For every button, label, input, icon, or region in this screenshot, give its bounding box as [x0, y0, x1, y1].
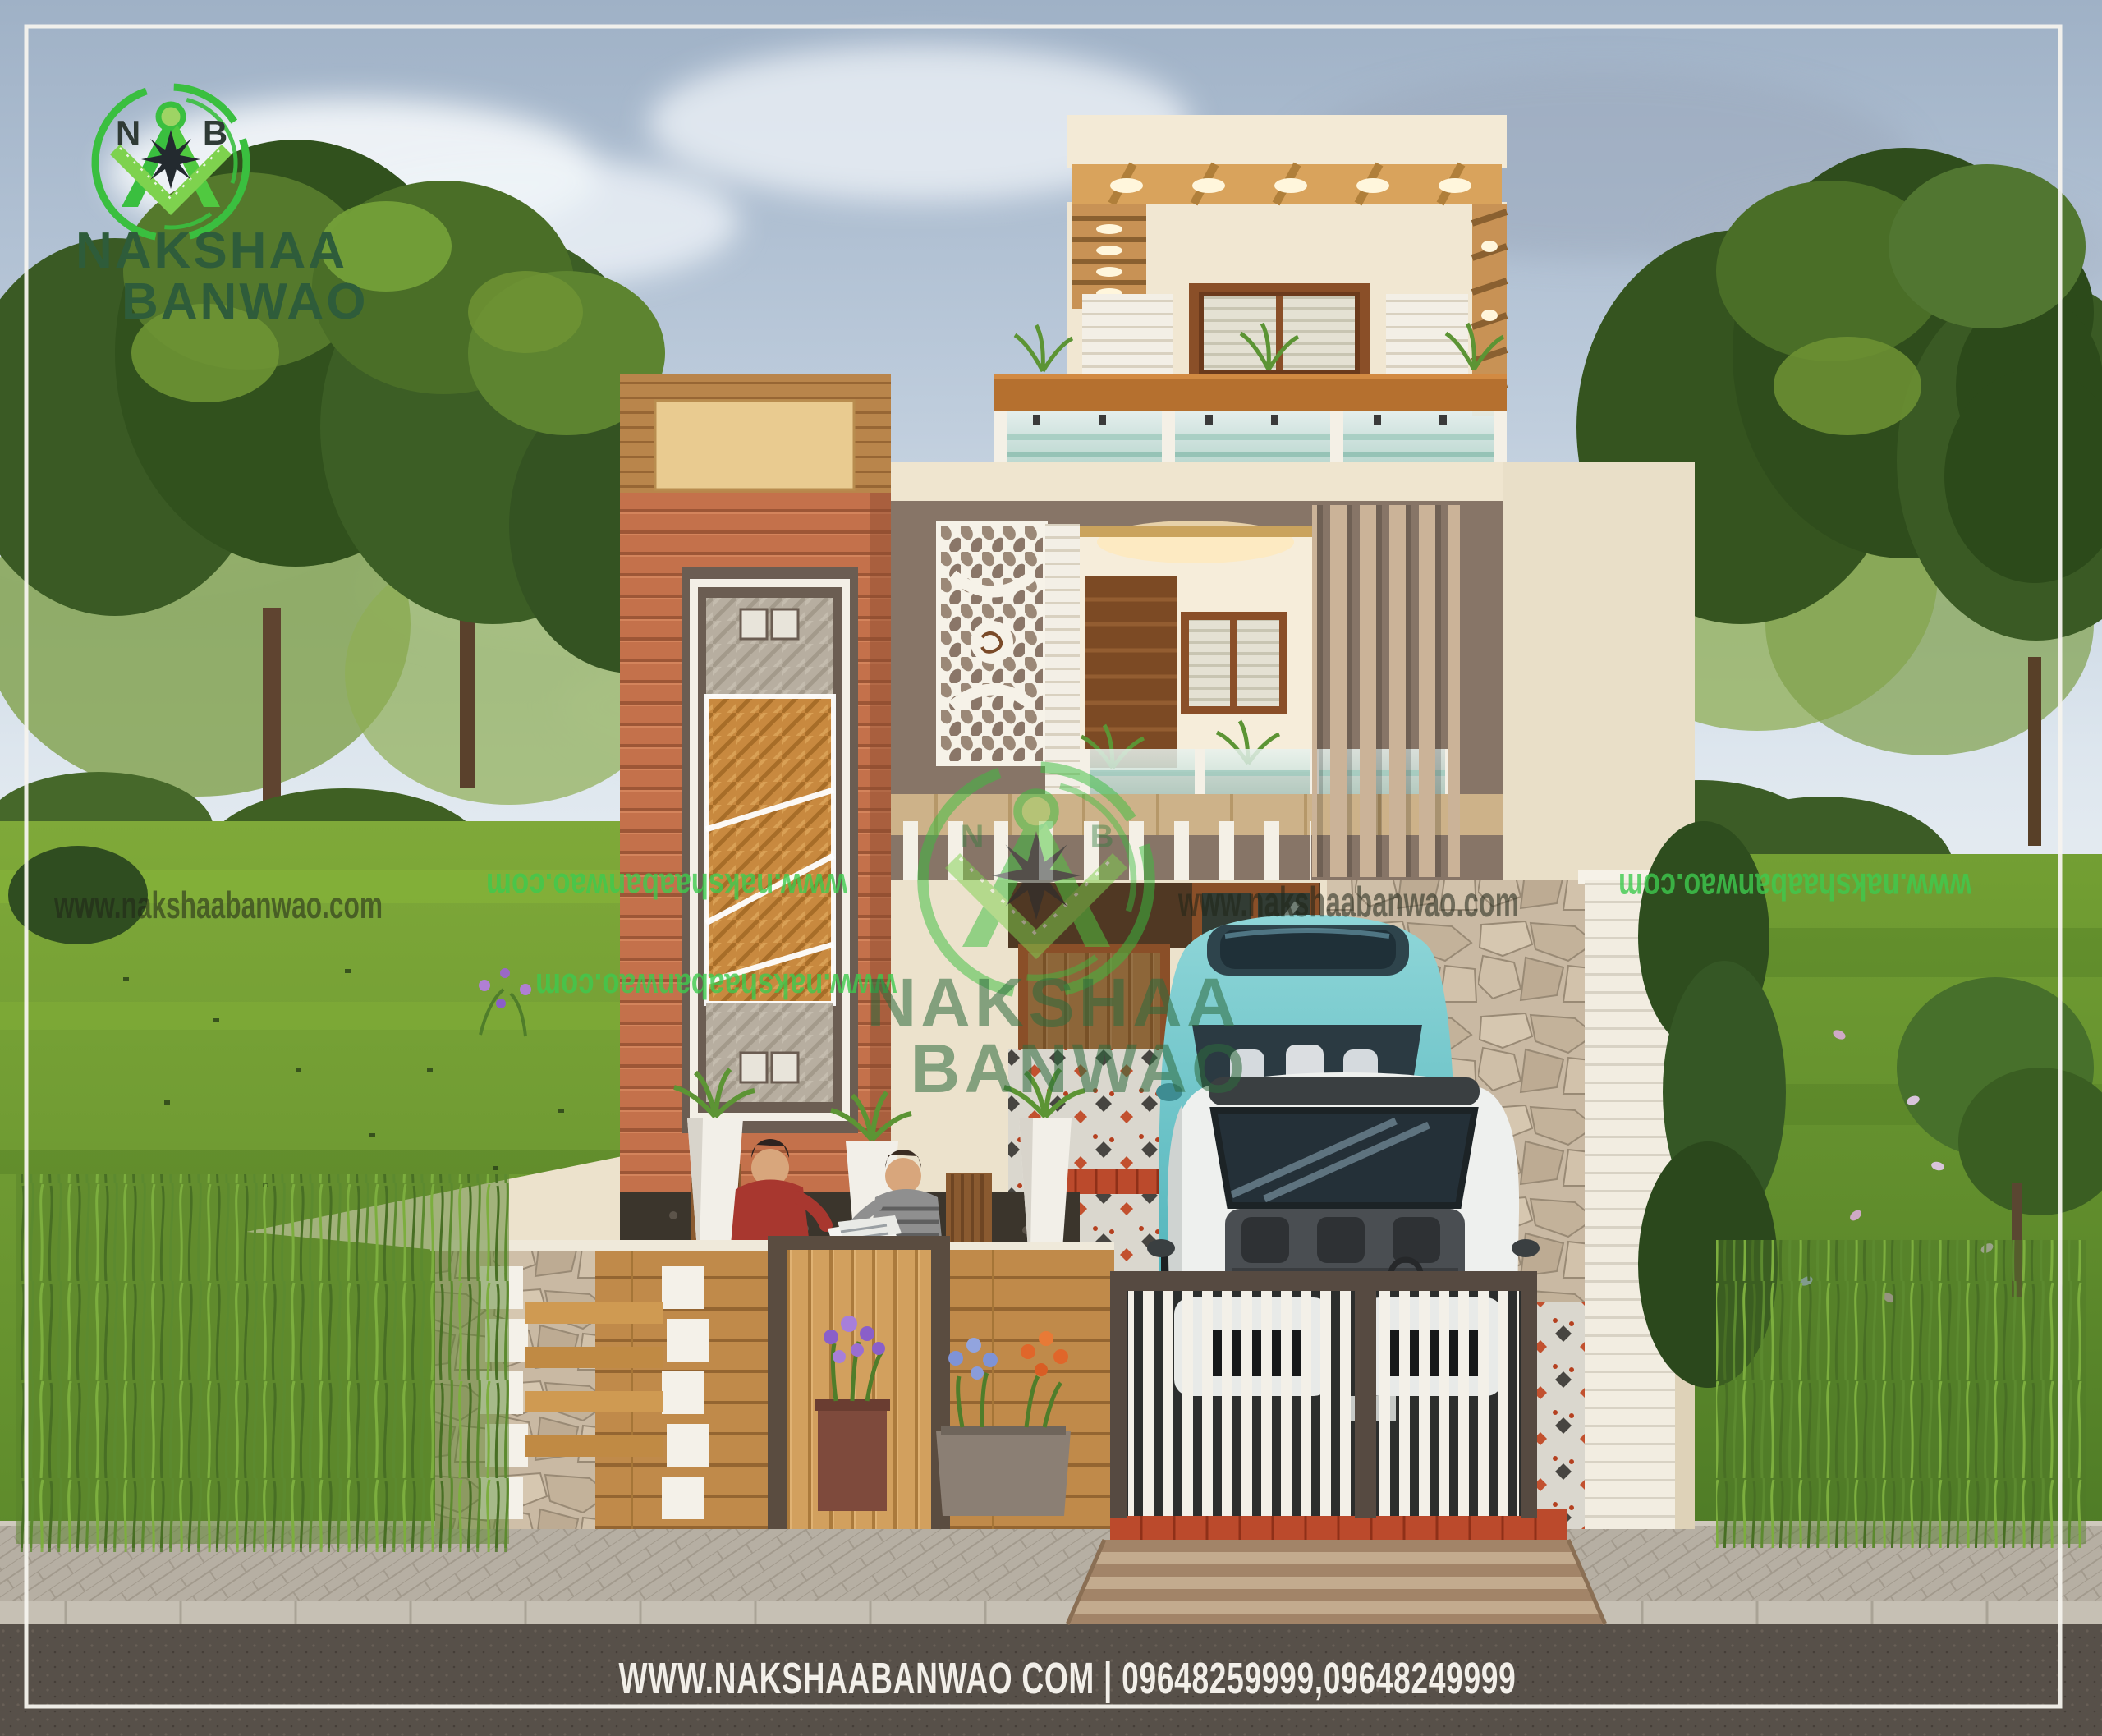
logo-monogram-b: B [203, 113, 227, 152]
convertible-mirror-left [1147, 1239, 1175, 1257]
watermark-mirrored-tower: www.nakshaabanwao.com [535, 966, 897, 1006]
logo-monogram-n: N [116, 113, 140, 152]
render-canvas: www.nakshaabanwao.com www.nakshaabanwao.… [0, 0, 2102, 1736]
tower-maple-panel [655, 401, 854, 489]
watermark-center-house: www.nakshaabanwao.com [1177, 879, 1519, 926]
third-floor-window [1189, 283, 1370, 382]
tall-grass-left [16, 1174, 509, 1552]
driveway-ramp [1067, 1540, 1605, 1624]
watermark-left-lawn: www.nakshaabanwao.com [53, 884, 383, 926]
convertible-windshield [1214, 1110, 1475, 1206]
footer-contact-line: WWW.NAKSHAABANWAO COM | 09648259999,0964… [619, 1654, 1517, 1704]
watermark-mirrored-right: www.nakshaabanwao.com [1618, 866, 1972, 908]
tall-grass-right [1716, 1240, 2086, 1548]
convertible-deck-band [1209, 1077, 1480, 1105]
gate-leaf-right-slats [1376, 1291, 1519, 1516]
watermark-monogram-n: N [961, 819, 984, 855]
watermark-mirrored-left: www.nakshaabanwao.com [486, 866, 848, 906]
curb [0, 1601, 2102, 1624]
right-return-wall [1503, 462, 1695, 880]
brand-name-line2: BANWAO [122, 273, 368, 330]
left-white-slat-panel [1082, 294, 1173, 379]
second-floor-balcony [1080, 521, 1312, 772]
second-floor-window [1181, 612, 1287, 714]
jali-panel [939, 524, 1045, 764]
left-light-slat-stack [1072, 204, 1146, 309]
wall-cap-right [950, 1242, 1114, 1250]
gate-leaf-left-slats [1128, 1291, 1353, 1516]
parapet [1067, 115, 1507, 168]
wooden-chair-right [946, 1173, 992, 1247]
main-gate [1110, 1271, 1567, 1542]
right-white-slat-panel [1386, 294, 1468, 379]
watermark-name-line2: BANWAO [911, 1030, 1250, 1107]
second-floor [891, 462, 1695, 880]
gate-post-left [1110, 1271, 1127, 1518]
gate-top-rail [1110, 1271, 1537, 1291]
vertical-fins [1312, 505, 1460, 877]
third-floor-glass-railing [994, 411, 1507, 462]
left-tower [620, 374, 891, 1236]
third-floor [994, 115, 1507, 462]
tower-decor-panel [682, 567, 858, 1133]
beam-highlight [994, 374, 1507, 379]
gate-post-center [1355, 1281, 1376, 1518]
gate-post-right [1521, 1271, 1537, 1518]
watermark-monogram-b: B [1090, 819, 1114, 855]
architectural-render: www.nakshaabanwao.com www.nakshaabanwao.… [0, 0, 2102, 1736]
convertible-mirror-right [1512, 1239, 1540, 1257]
brand-name-line1: NAKSHAA [76, 223, 347, 279]
marble-squares-column-2 [662, 1266, 709, 1519]
